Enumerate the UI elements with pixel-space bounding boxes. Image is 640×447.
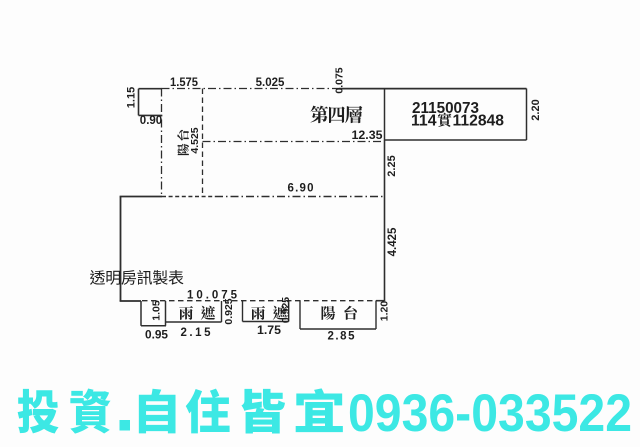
svg-text:4.525: 4.525 xyxy=(189,127,201,153)
svg-text:1.575: 1.575 xyxy=(170,77,199,89)
svg-text:0936-033522: 0936-033522 xyxy=(348,384,632,443)
svg-text:6.90: 6.90 xyxy=(288,183,314,195)
svg-text:2.15: 2.15 xyxy=(181,327,212,339)
svg-text:2.25: 2.25 xyxy=(386,155,398,176)
svg-text:114: 114 xyxy=(411,113,437,130)
svg-text:0.90: 0.90 xyxy=(140,115,162,127)
svg-text:0.925: 0.925 xyxy=(223,298,235,324)
svg-text:1.05: 1.05 xyxy=(151,300,163,321)
svg-text:1.15: 1.15 xyxy=(126,87,138,108)
svg-text:0.075: 0.075 xyxy=(333,67,345,93)
svg-text:1.75: 1.75 xyxy=(257,325,282,337)
svg-text:2.20: 2.20 xyxy=(530,99,542,120)
svg-text:5.025: 5.025 xyxy=(256,77,285,89)
svg-text:4.425: 4.425 xyxy=(387,227,399,256)
svg-text:2.85: 2.85 xyxy=(328,331,356,343)
svg-text:1.20: 1.20 xyxy=(379,301,391,322)
svg-text:0.95: 0.95 xyxy=(145,330,169,342)
svg-text:112848: 112848 xyxy=(453,113,505,130)
svg-text:12.35: 12.35 xyxy=(352,128,383,142)
